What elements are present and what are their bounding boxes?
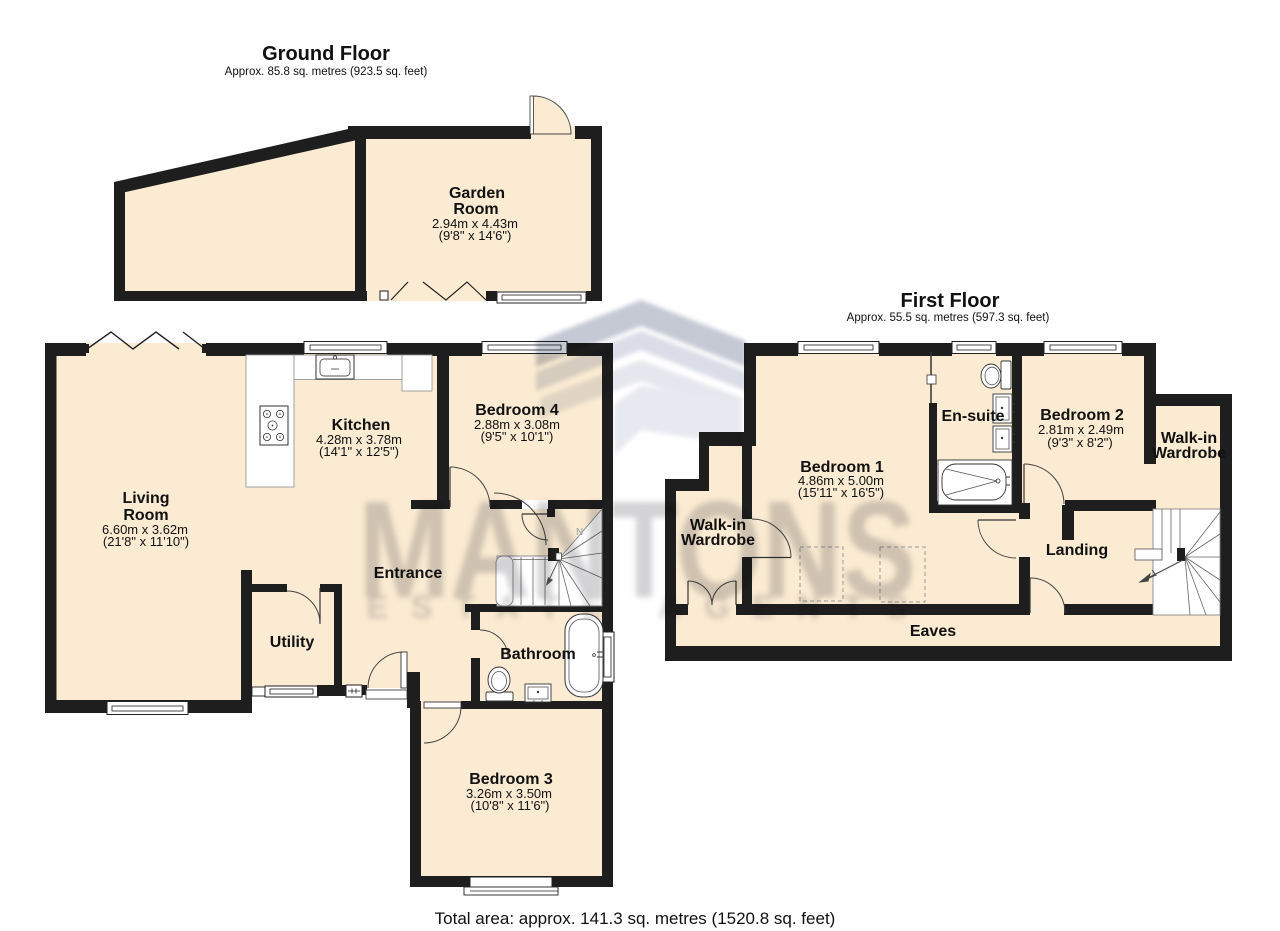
svg-text:(9'3" x 8'2"): (9'3" x 8'2") (1047, 435, 1113, 450)
svg-text:Ground Floor: Ground Floor (262, 43, 390, 65)
svg-text:MANTONS: MANTONS (358, 473, 916, 627)
svg-text:Approx. 55.5 sq. metres (597.3: Approx. 55.5 sq. metres (597.3 sq. feet) (847, 312, 1050, 324)
svg-text:Total area: approx. 141.3 sq.: Total area: approx. 141.3 sq. metres (15… (435, 909, 836, 928)
svg-text:Eaves: Eaves (910, 623, 956, 640)
svg-text:Garden: Garden (449, 185, 505, 202)
svg-text:(10'8" x 11'6"): (10'8" x 11'6") (471, 798, 550, 813)
svg-text:First Floor: First Floor (901, 290, 1000, 312)
svg-text:Approx. 85.8 sq. metres (923.5: Approx. 85.8 sq. metres (923.5 sq. feet) (225, 66, 428, 78)
svg-text:Living: Living (122, 490, 169, 507)
svg-text:Bathroom: Bathroom (500, 646, 576, 663)
svg-text:En-suite: En-suite (941, 408, 1004, 425)
svg-text:(21'8" x 11'10"): (21'8" x 11'10") (103, 534, 189, 549)
svg-text:Wardrobe: Wardrobe (1152, 445, 1226, 462)
svg-text:Utility: Utility (270, 634, 315, 651)
svg-text:(9'5" x 10'1"): (9'5" x 10'1") (481, 429, 554, 444)
svg-text:(14'1" x 12'5"): (14'1" x 12'5") (319, 444, 399, 459)
svg-text:Landing: Landing (1046, 542, 1108, 559)
svg-text:(9'8" x 14'6"): (9'8" x 14'6") (439, 228, 512, 243)
